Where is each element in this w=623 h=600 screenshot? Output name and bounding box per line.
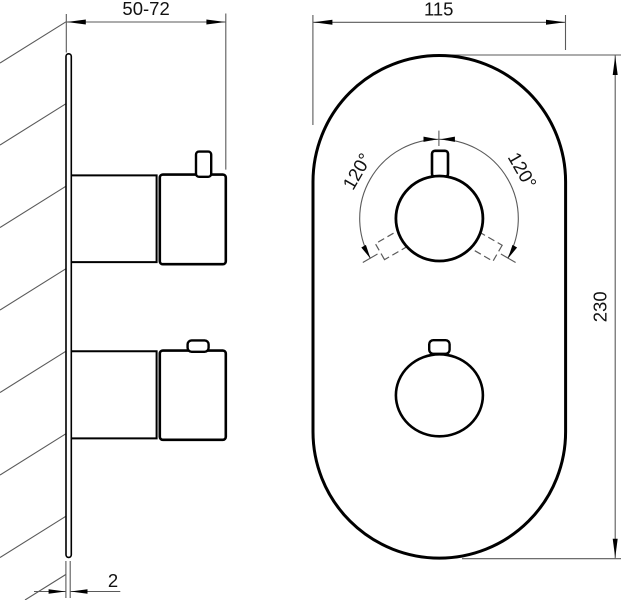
svg-text:2: 2 [108,570,118,591]
svg-text:50-72: 50-72 [122,0,169,19]
svg-text:230: 230 [590,291,611,322]
svg-text:115: 115 [424,0,454,19]
